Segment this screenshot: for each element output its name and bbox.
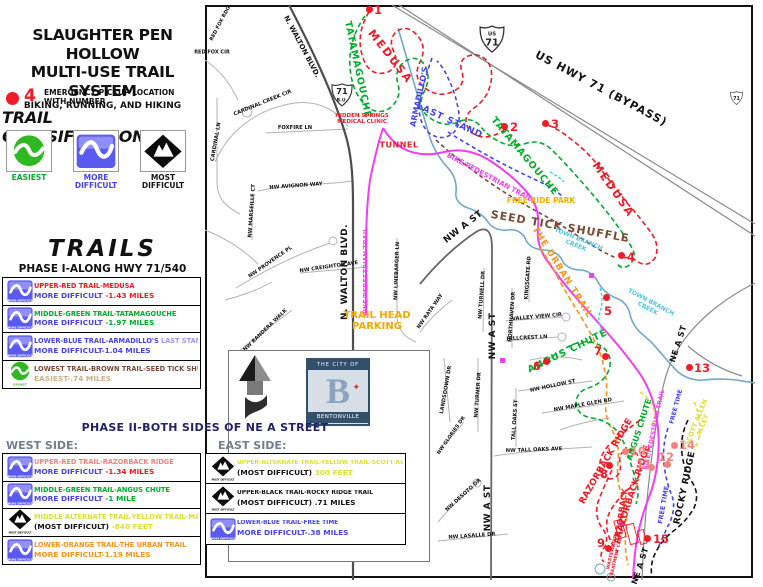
emergency-dot-number: 6 (533, 359, 541, 373)
most-difficult-icon: MOST DIFFICULT (8, 509, 32, 535)
classification-easiest: EASIEST (4, 130, 54, 191)
trail-row-icon: MORE DIFFICULT (5, 307, 34, 330)
svg-text:MORE DIFFICULT: MORE DIFFICULT (7, 326, 32, 330)
trail-row-text: MIDDLE ALTERNATE TRAIL-YELLOW TRAIL-MAST… (34, 513, 198, 531)
phase1-title: PHASE I-ALONG HWY 71/540 (0, 263, 205, 275)
emergency-legend-label: EMERGENCY PICKUP LOCATION WITH NUMBER (44, 88, 174, 107)
trail-row-icon: EASIEST (5, 361, 34, 387)
map-label: BIKE/PEDESTRIAN TRAIL (362, 228, 369, 317)
svg-text:MORE DIFFICULT: MORE DIFFICULT (7, 474, 32, 478)
more-difficult-icon (76, 134, 116, 169)
trail-row: MOST DIFFICULTMIDDLE ALTERNATE TRAIL-YEL… (3, 509, 200, 537)
emergency-dot (603, 294, 610, 301)
emergency-dot-number: 2 (510, 120, 518, 134)
trail-row-text: UPPER-BLACK TRAIL-ROCKY RIDGE TRAIL(MOST… (237, 490, 403, 507)
classification-more: MORE DIFFICULT (71, 130, 121, 191)
trail-row-icon: MOST DIFFICULT (5, 509, 34, 535)
map-label: NW A ST (484, 485, 494, 532)
emergency-dot-number: 7 (594, 344, 602, 358)
emergency-dot (602, 353, 609, 360)
trail-row-text: MIDDLE-GREEN TRAIL-ANGUS CHUTEMORE DIFFI… (34, 486, 198, 504)
trail-row: EASIESTLOWEST TRAIL-BROWN TRAIL-SEED TIC… (3, 361, 200, 389)
emergency-dot (501, 123, 508, 130)
emergency-dot (686, 364, 693, 371)
emergency-dot-number: 3 (551, 117, 559, 131)
map-label: FOXFIRE LN (278, 126, 312, 132)
trail-row: MORE DIFFICULTMIDDLE-GREEN TRAIL-TATAMAG… (3, 306, 200, 334)
trail-row-icon: MORE DIFFICULT (5, 539, 34, 562)
svg-text:MOST DIFFICULT: MOST DIFFICULT (211, 477, 234, 481)
emergency-dot-number: 9 (597, 536, 605, 550)
svg-text:B.U.: B.U. (337, 97, 348, 103)
trail-row: MOST DIFFICULTUPPER-ALTERNATE TRAIL-YELL… (206, 454, 405, 484)
classification-label: EASIEST (4, 174, 54, 182)
trail-row: MORE DIFFICULTLOWER-BLUE TRAIL-ARMADILLO… (3, 333, 200, 361)
trail-row: MORE DIFFICULTUPPER-RED TRAIL-RAZORBACK … (3, 454, 200, 482)
trail-row-text: UPPER-RED TRAIL-MEDUSAMORE DIFFICULT -1.… (34, 282, 198, 300)
emergency-dot (644, 535, 651, 542)
more-difficult-icon: MORE DIFFICULT (7, 280, 33, 303)
trail-row: MORE DIFFICULTLOWER-ORANGE TRAIL-THE URB… (3, 537, 200, 565)
trail-row: MORE DIFFICULTMIDDLE-GREEN TRAIL-ANGUS C… (3, 482, 200, 510)
emergency-dot-number: 5 (604, 304, 612, 318)
easiest-icon (9, 134, 49, 169)
map-label: HIDDEN SPRINGS MEDICAL CLINIC (335, 113, 388, 125)
map-label: TRAIL HEAD PARKING (343, 310, 410, 332)
emergency-dot (618, 252, 625, 259)
svg-text:71: 71 (485, 38, 499, 49)
more-difficult-icon: MORE DIFFICULT (7, 335, 33, 358)
west-side-label: WEST SIDE: (6, 439, 78, 452)
trails-title: TRAILS (0, 236, 205, 262)
more-difficult-icon: MORE DIFFICULT (7, 483, 33, 506)
emergency-dot (366, 6, 373, 13)
most-difficult-icon: MOST DIFFICULT (211, 486, 235, 512)
most-difficult-icon: MOST DIFFICULT (211, 456, 235, 482)
emergency-dot-icon (6, 92, 19, 105)
emergency-dot-number: 11 (636, 457, 652, 471)
trail-row: MORE DIFFICULTLOWER-BLUE TRAIL-FREE TIME… (206, 514, 405, 544)
most-difficult-icon (143, 134, 183, 169)
more-difficult-icon: MORE DIFFICULT (210, 518, 236, 541)
more-difficult-icon: MORE DIFFICULT (7, 307, 33, 330)
classification-most: MOST DIFFICULT (138, 130, 188, 191)
trail-row-icon: MOST DIFFICULT (208, 456, 237, 482)
classification-label: MOST DIFFICULT (138, 174, 188, 191)
svg-text:MORE DIFFICULT: MORE DIFFICULT (7, 353, 32, 357)
logo-top-text: THE CITY OF (308, 360, 368, 370)
map-label: NW A ST (489, 313, 499, 360)
emergency-dot-number: 15 (653, 532, 669, 546)
trail-row-icon: MORE DIFFICULT (208, 518, 237, 541)
highway-shield: 71 (730, 90, 743, 109)
emergency-dot (542, 120, 549, 127)
trail-row-text: LOWER-ORANGE TRAIL-THE URBAN TRAILMORE D… (34, 541, 198, 559)
svg-text:EASIEST: EASIEST (13, 383, 26, 387)
emergency-dot-number: 14 (679, 438, 695, 452)
logo-mid: B ✦ (308, 370, 368, 412)
map-label: N. WALTON BLVD. (341, 224, 351, 320)
classification-icons-row: EASIEST MORE DIFFICULT MOST DIFFICULT (4, 130, 204, 191)
trail-row-text: LOWEST TRAIL-BROWN TRAIL-SEED TICK SHUFF… (34, 365, 198, 383)
svg-text:MORE DIFFICULT: MORE DIFFICULT (7, 502, 32, 506)
emergency-dot-number: 12 (658, 450, 674, 464)
east-side-trail-table: MOST DIFFICULTUPPER-ALTERNATE TRAIL-YELL… (205, 453, 406, 545)
classification-label: MORE DIFFICULT (71, 174, 121, 191)
easiest-icon: EASIEST (8, 361, 32, 387)
emergency-dot-number: 1 (374, 3, 382, 17)
emergency-dot-number: 4 (627, 250, 635, 264)
map-label: TUNNEL (380, 142, 419, 151)
emergency-dot (622, 448, 629, 455)
svg-text:US: US (488, 31, 496, 37)
svg-text:MORE DIFFICULT: MORE DIFFICULT (7, 557, 32, 561)
east-side-label: EAST SIDE: (218, 439, 286, 452)
more-difficult-icon: MORE DIFFICULT (7, 539, 33, 562)
emergency-dot-number: 8 (600, 467, 608, 481)
highway-shield: US 71 (479, 25, 505, 57)
emergency-dot-number: 13 (694, 361, 710, 375)
classification-tile (6, 130, 52, 172)
map-label: FREE RIDE PARK (507, 197, 575, 205)
emergency-dot (605, 545, 612, 552)
svg-text:71: 71 (336, 86, 348, 96)
logo-letter: B (326, 371, 350, 411)
emergency-dot (671, 442, 678, 449)
city-of-bentonville-logo: THE CITY OF B ✦ BENTONVILLE (306, 358, 370, 426)
svg-text:MORE DIFFICULT: MORE DIFFICULT (7, 298, 32, 302)
emergency-dot-number: 10 (630, 444, 646, 458)
trail-row-icon: MOST DIFFICULT (208, 486, 237, 512)
svg-text:MOST DIFFICULT: MOST DIFFICULT (211, 507, 234, 511)
more-difficult-icon: MORE DIFFICULT (7, 456, 33, 479)
trail-row-icon: MORE DIFFICULT (5, 483, 34, 506)
svg-text:71: 71 (733, 96, 740, 102)
classification-tile (73, 130, 119, 172)
trail-row-icon: MORE DIFFICULT (5, 280, 34, 303)
svg-text:MORE DIFFICULT: MORE DIFFICULT (210, 536, 235, 540)
emergency-dot (543, 358, 550, 365)
emergency-sample-number: 4 (24, 86, 36, 106)
trail-row-icon: MORE DIFFICULT (5, 456, 34, 479)
phase2-title: PHASE II-BOTH SIDES OF NE A STREET (40, 421, 370, 434)
star-icon: ✦ (352, 383, 360, 393)
trail-row-icon: MORE DIFFICULT (5, 335, 34, 358)
trail-row: MORE DIFFICULTUPPER-RED TRAIL-MEDUSAMORE… (3, 278, 200, 306)
north-arrow-icon (235, 353, 275, 421)
trail-row-text: UPPER-ALTERNATE TRAIL-YELLOW TRAIL-SCOTT… (237, 460, 403, 477)
phase1-trail-table: MORE DIFFICULTUPPER-RED TRAIL-MEDUSAMORE… (2, 277, 201, 389)
classification-tile (140, 130, 186, 172)
trail-row-text: LOWER-BLUE TRAIL-ARMADILLO'S LAST STANDM… (34, 337, 198, 355)
trail-row-text: UPPER-RED TRAIL-RAZORBACK RIDGEMORE DIFF… (34, 458, 198, 476)
trail-row: MOST DIFFICULTUPPER-BLACK TRAIL-ROCKY RI… (206, 484, 405, 514)
svg-text:MOST DIFFICULT: MOST DIFFICULT (8, 531, 31, 535)
trail-row-text: MIDDLE-GREEN TRAIL-TATAMAGOUCHEMORE DIFF… (34, 310, 198, 328)
highway-shield: 71 B.U. (331, 83, 353, 111)
trail-row-text: LOWER-BLUE TRAIL-FREE TIMEMORE DIFFICULT… (237, 520, 403, 537)
west-side-trail-table: MORE DIFFICULTUPPER-RED TRAIL-RAZORBACK … (2, 453, 201, 565)
map-title-line1: SLAUGHTER PEN HOLLOW (0, 26, 205, 63)
